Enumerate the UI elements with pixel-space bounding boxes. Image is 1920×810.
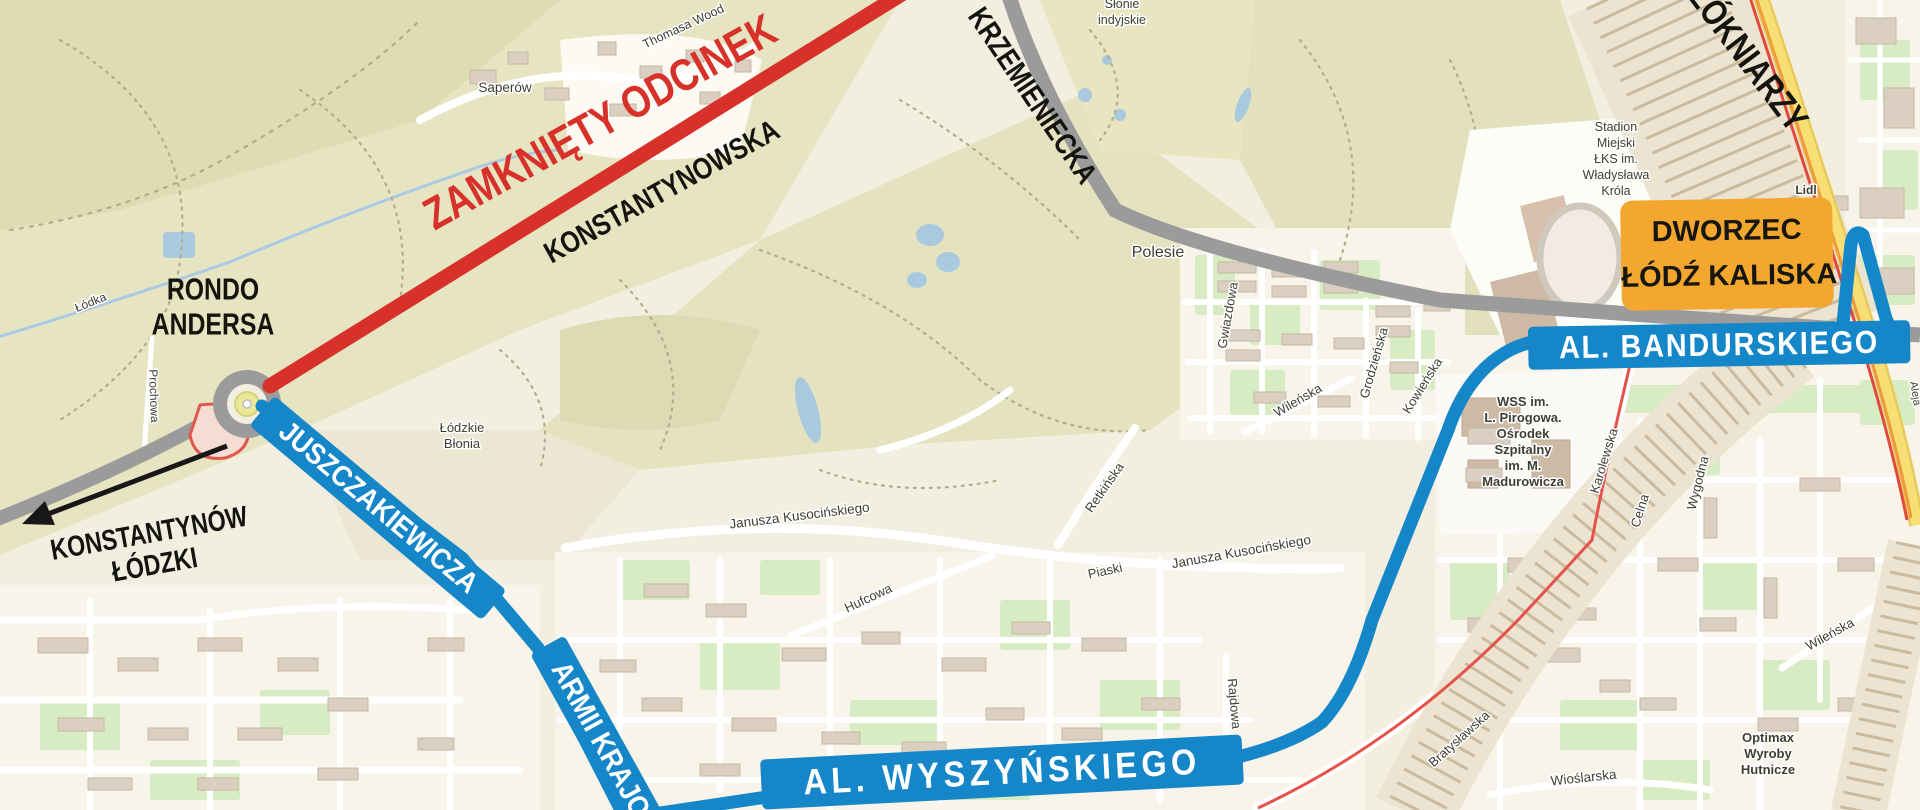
label-stadium-4: Władysława [1583, 168, 1650, 182]
map-screenshot: Thomasa Wood [0, 0, 1920, 810]
stadium-ring [1540, 206, 1620, 310]
label-prochowa: Prochowa [146, 369, 162, 423]
label-hospital-2: L. Pirogowa. [1484, 410, 1561, 425]
label-hospital-6: Madurowicza [1482, 474, 1564, 489]
label-hospital-1: WSS im. [1497, 394, 1549, 409]
rondo-line-2: ANDERSA [152, 307, 275, 342]
label-lodzkie-blonia-1: Łódzkie [440, 420, 485, 435]
station-line-2: ŁÓDŹ KALISKA [1621, 252, 1834, 301]
label-optimax-3: Hutnicze [1741, 762, 1795, 777]
rondo-andersa-label: RONDO ANDERSA [136, 272, 289, 341]
label-polesie: Polesie [1132, 244, 1185, 261]
label-stadium-5: Króla [1601, 184, 1630, 198]
rondo-line-1: RONDO [152, 272, 275, 307]
label-slonie-2: indyjskie [1098, 13, 1146, 27]
label-saperow: Saperów [478, 80, 532, 95]
label-stadium-2: Miejski [1597, 136, 1635, 150]
detour-label-bandurskiego: AL. BANDURSKIEGO [1528, 320, 1910, 370]
label-optimax-2: Wyroby [1744, 746, 1792, 761]
label-lidl: Lidl [1795, 183, 1816, 197]
label-stadium-3: ŁKS im. [1594, 152, 1638, 166]
label-lodzkie-blonia-2: Błonia [444, 436, 481, 451]
label-hospital-4: Szpitalny [1494, 442, 1552, 457]
station-box-dworzec-lodz-kaliska: DWORZEC ŁÓDŹ KALISKA [1620, 197, 1834, 311]
label-optimax-1: Optimax [1742, 730, 1795, 745]
station-line-1: DWORZEC [1620, 207, 1833, 256]
label-hospital-3: Ośrodek [1497, 426, 1551, 441]
base-map: Thomasa Wood [0, 0, 1920, 810]
label-stadium-1: Stadion [1595, 120, 1637, 134]
label-slonie-1: Słonie [1105, 0, 1140, 11]
label-hospital-5: im. M. [1505, 458, 1542, 473]
